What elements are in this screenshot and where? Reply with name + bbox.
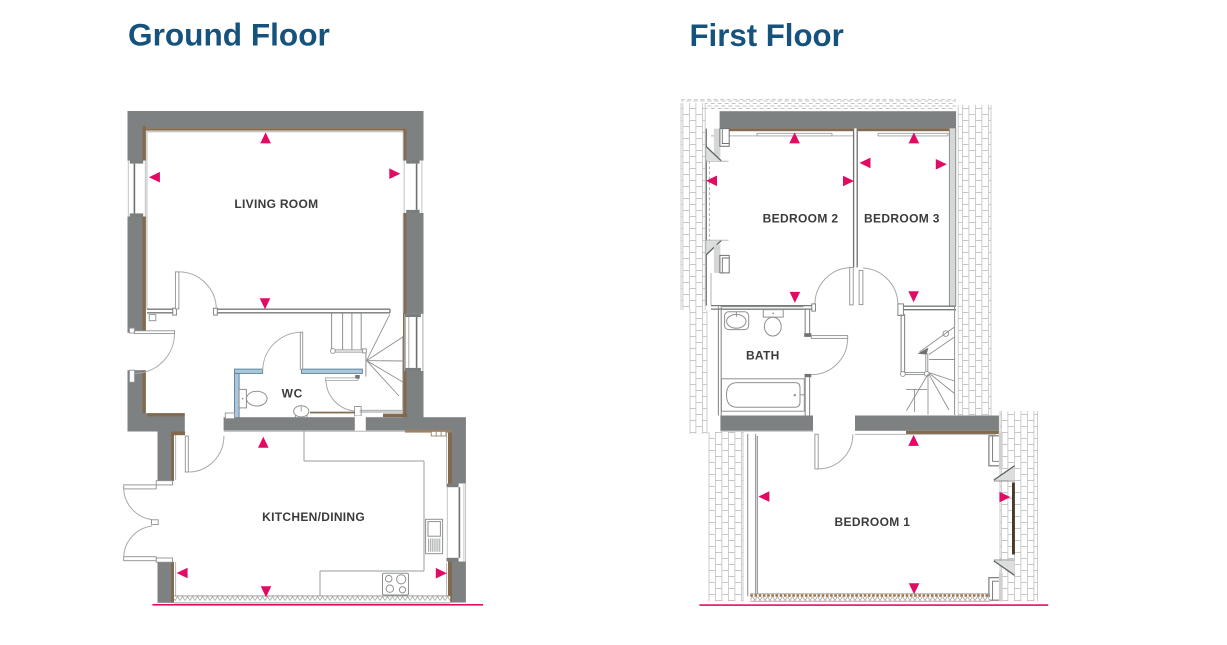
svg-text:BEDROOM 2: BEDROOM 2	[763, 212, 839, 226]
svg-text:BATH: BATH	[746, 349, 780, 363]
svg-text:First Floor: First Floor	[690, 18, 844, 53]
svg-text:LIVING ROOM: LIVING ROOM	[234, 197, 318, 211]
svg-text:BEDROOM 1: BEDROOM 1	[834, 515, 910, 529]
svg-text:BEDROOM 3: BEDROOM 3	[864, 212, 940, 226]
svg-text:WC: WC	[282, 387, 303, 401]
svg-text:KITCHEN/DINING: KITCHEN/DINING	[262, 510, 365, 524]
svg-text:Ground Floor: Ground Floor	[128, 16, 330, 52]
